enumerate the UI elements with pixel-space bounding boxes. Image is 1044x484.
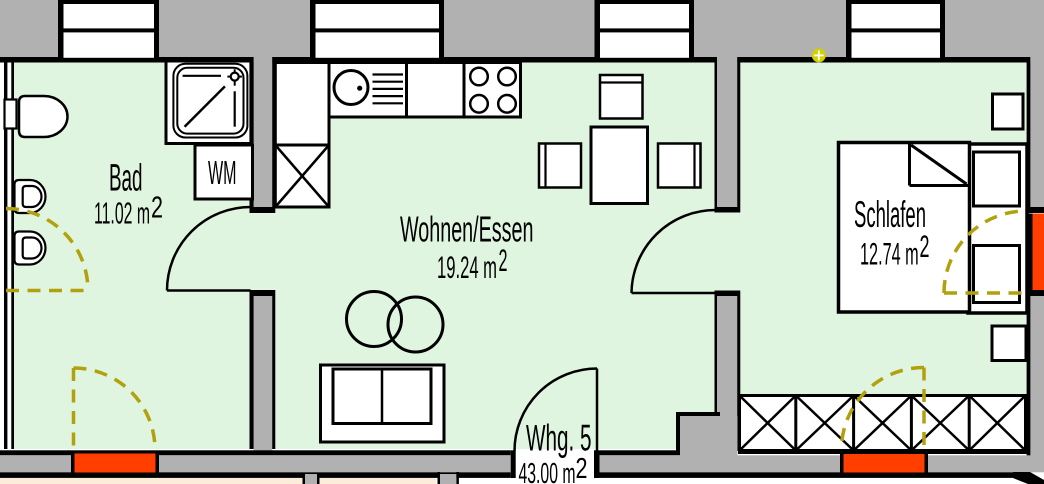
svg-text:WM: WM [208,155,237,192]
svg-text:2: 2 [576,453,588,484]
svg-text:2: 2 [151,190,163,225]
svg-text:43.00 m: 43.00 m [519,458,576,484]
svg-text:11.02 m: 11.02 m [94,196,150,231]
svg-text:12.74 m: 12.74 m [860,236,919,272]
svg-text:19.24 m: 19.24 m [437,249,497,285]
svg-text:Bad: Bad [109,158,143,200]
svg-text:2: 2 [920,228,930,264]
svg-text:2: 2 [499,242,508,278]
svg-text:Schlafen: Schlafen [854,193,926,235]
svg-text:Wohnen/Essen: Wohnen/Essen [400,209,534,250]
